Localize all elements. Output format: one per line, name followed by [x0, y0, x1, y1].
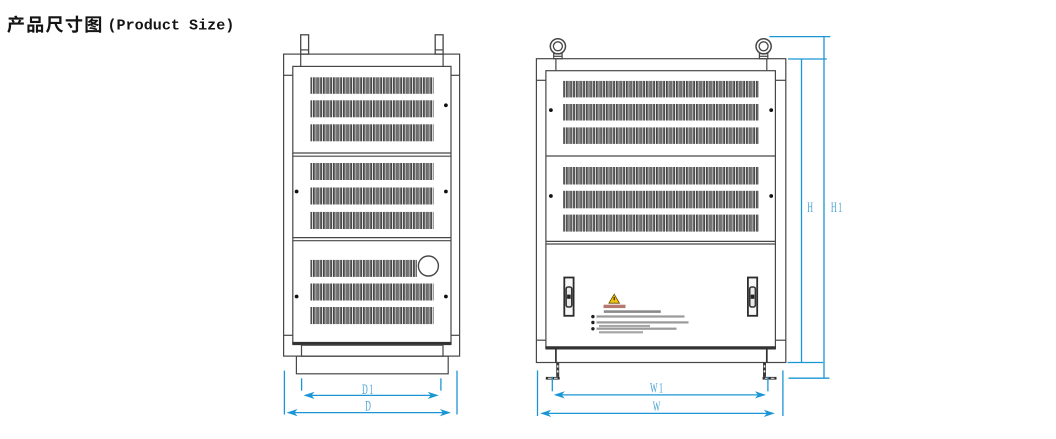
svg-text:D1: D1	[362, 382, 375, 398]
svg-text:H1: H1	[831, 200, 844, 216]
svg-text:W: W	[653, 398, 662, 414]
svg-text:W1: W1	[650, 380, 664, 396]
svg-text:H: H	[807, 200, 814, 216]
svg-text:(Product Size): (Product Size)	[108, 17, 235, 35]
svg-text:D: D	[365, 398, 372, 414]
